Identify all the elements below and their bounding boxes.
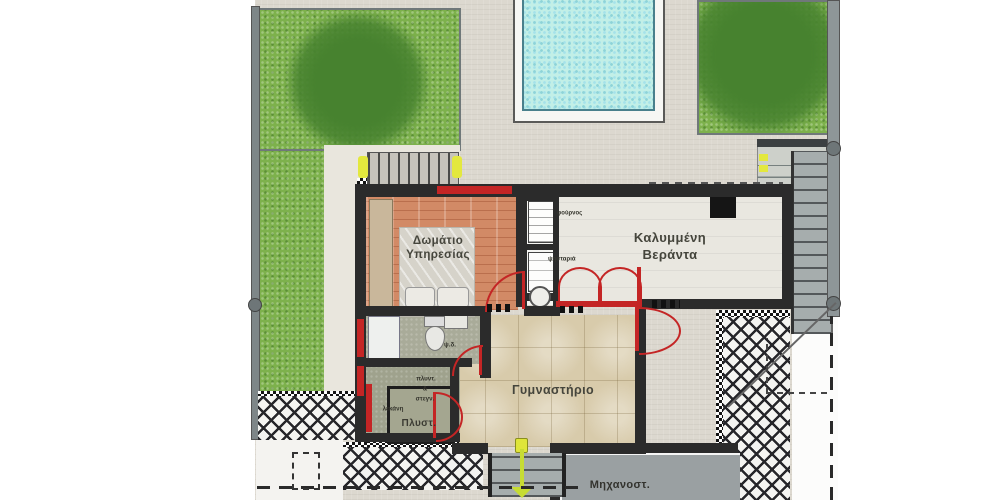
wall-gym-bottom [558,443,638,454]
detail-dash-h [766,392,832,394]
veranda-label: Καλυμμένη Βεράντα [600,229,740,263]
lawn-top-right [697,0,831,135]
sill-marker [487,304,513,312]
tree-canopy [697,0,831,135]
boundary-post [826,141,841,156]
bed-pillow [437,287,469,308]
counter-sink [529,286,551,308]
wall-service-bottom [524,306,560,316]
bed-pillow [405,287,435,308]
lawn-top-left [258,8,461,151]
service-room-label: Δωμάτιο Υπηρεσίας [383,234,493,262]
window-laundry [366,384,372,432]
veranda-label-line2: Βεράντα [642,247,697,262]
veranda-label-line1: Καλυμμένη [634,230,706,245]
wc-door-leaf [479,345,482,375]
side-platform-wall [757,139,828,147]
window-service-room [437,186,512,194]
french-door-jamb [637,267,641,305]
stair-marker [759,154,768,161]
property-line-right [830,316,833,500]
detail-dash-v [766,338,768,394]
wall-service-bottom [355,306,487,316]
boundary-wall-left [251,6,260,440]
lawn-left-strip [258,149,328,399]
tree-canopy [285,10,430,151]
oven-unit [528,201,554,243]
direction-arrow-line [520,449,524,487]
counter-divider [525,244,555,250]
stair-marker [759,165,768,172]
boundary-wall-right [827,0,840,317]
washer-label: πλυντ. [412,375,440,382]
basin-label: λεκάνη [378,405,408,412]
floor-plan: Δωμάτιο Υπηρεσίας Καλυμμένη Βεράντα Γυμν… [0,0,1000,500]
garden-path-left [324,192,357,395]
gym-label: Γυμναστήριο [490,383,616,397]
setback-line-top-right [649,182,783,184]
entrance-stairs [367,152,459,185]
washbasin [368,316,400,360]
swimming-pool [522,0,655,111]
machine-room-label: Μηχανοστ. [584,479,656,491]
paved-area-left [258,396,362,440]
gate-detail [292,452,320,490]
wall-veranda-right [782,195,793,307]
sill-marker [560,306,586,313]
wall-gym-bottom [452,443,488,454]
shelf [444,314,468,329]
paving-edge [716,310,790,317]
ampersand-label: & [417,385,433,392]
window-left-2 [357,366,364,396]
service-room-label-line1: Δωμάτιο [413,235,463,247]
stair-marker [452,156,462,178]
stair-marker [358,156,368,178]
sill-marker [652,300,680,308]
dryer-label: στεγν. [410,395,440,402]
boundary-post [248,298,262,312]
wc-label: ψ.δ. [441,341,460,348]
service-room-label-line2: Υπηρεσίας [406,249,470,261]
oven-label: φούρνος [557,209,582,216]
grill-label: ψησταριά [548,255,576,262]
wall-top [355,184,793,197]
laundry-label: Πλυστ. [392,418,446,429]
window-left-1 [357,319,364,357]
machine-room-floor [560,453,740,500]
